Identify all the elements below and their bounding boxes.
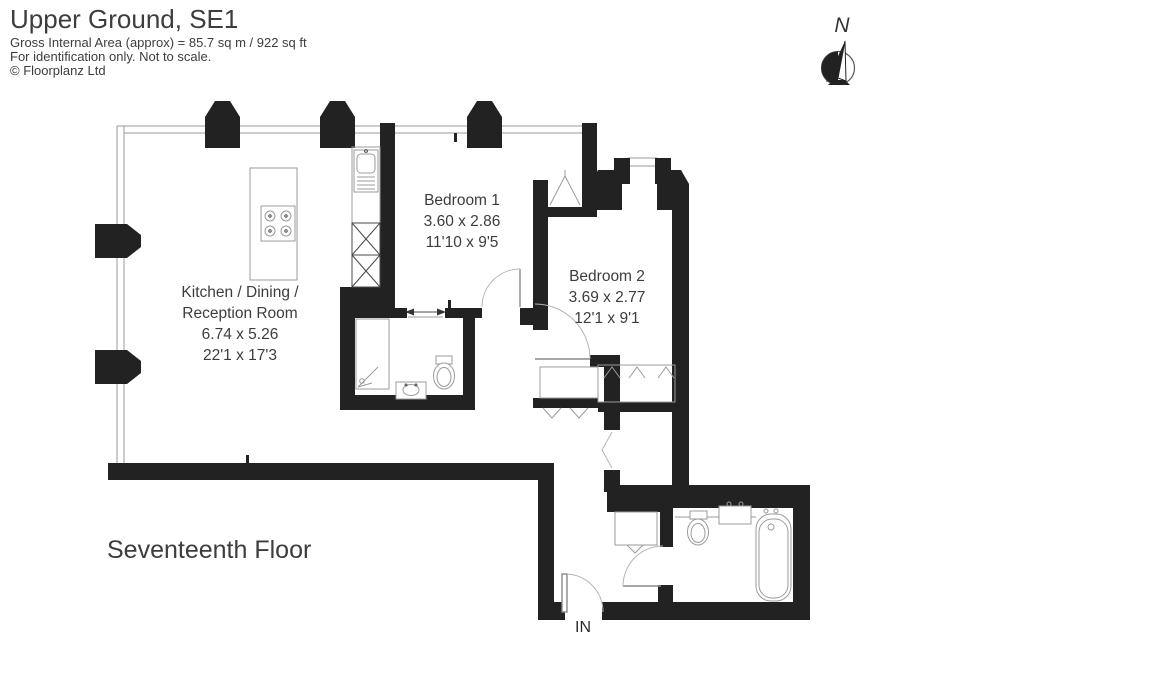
entrance-door: [562, 574, 603, 612]
compass-north-label: N: [820, 14, 864, 38]
hall-cupboard: [540, 367, 598, 418]
page-title: Upper Ground, SE1: [10, 4, 307, 35]
kitchen-appliance-2: [352, 255, 380, 287]
lobby-closet: [615, 512, 657, 553]
ensuite-sliding-door: [405, 309, 446, 318]
ensuite-fixtures: [356, 309, 455, 400]
area-line: Gross Internal Area (approx) = 85.7 sq m…: [10, 36, 307, 50]
ensuite-basin: [396, 382, 426, 399]
bedroom2-label-metric: 3.69 x 2.77: [537, 287, 677, 308]
bedroom1-closet: [550, 170, 580, 205]
bedroom2-label: Bedroom 2 3.69 x 2.77 12'1 x 9'1: [537, 266, 677, 329]
bathroom-toilet: [688, 511, 709, 545]
floor-label: Seventeenth Floor: [107, 536, 311, 565]
bedroom1-label-name: Bedroom 1: [392, 190, 532, 211]
floorplan-page: Upper Ground, SE1 Gross Internal Area (a…: [0, 0, 1152, 675]
bedroom1-door: [482, 269, 520, 307]
north-compass: [822, 41, 855, 85]
disclaimer-line: For identification only. Not to scale.: [10, 50, 307, 64]
bedroom1-label: Bedroom 1 3.60 x 2.86 11'10 x 9'5: [392, 190, 532, 253]
bedroom2-label-name: Bedroom 2: [537, 266, 677, 287]
kitchen-fixtures: [250, 147, 380, 287]
header: Upper Ground, SE1 Gross Internal Area (a…: [10, 4, 307, 77]
kitchen-label-name-line1: Kitchen / Dining /: [140, 282, 340, 303]
bathtub: [756, 509, 791, 601]
hob: [261, 206, 295, 241]
kitchen-appliance-1: [352, 223, 380, 255]
bedroom1-label-metric: 3.60 x 2.86: [392, 211, 532, 232]
bedroom1-label-imperial: 11'10 x 9'5: [392, 232, 532, 253]
bathroom-door: [623, 546, 663, 586]
bedroom2-label-imperial: 12'1 x 9'1: [537, 308, 677, 329]
kitchen-sink: [354, 150, 378, 192]
kitchen-label-metric: 6.74 x 5.26: [140, 324, 340, 345]
entrance-label: IN: [558, 619, 608, 637]
ensuite-toilet: [434, 356, 455, 389]
hall-door: [602, 432, 612, 468]
kitchen-label: Kitchen / Dining / Reception Room 6.74 x…: [140, 282, 340, 366]
copyright-line: © Floorplanz Ltd: [10, 64, 307, 78]
bathroom-fixtures: [675, 502, 791, 601]
kitchen-label-imperial: 22'1 x 17'3: [140, 345, 340, 366]
kitchen-label-name-line2: Reception Room: [140, 303, 340, 324]
shower: [356, 319, 389, 389]
kitchen-island: [250, 168, 297, 280]
